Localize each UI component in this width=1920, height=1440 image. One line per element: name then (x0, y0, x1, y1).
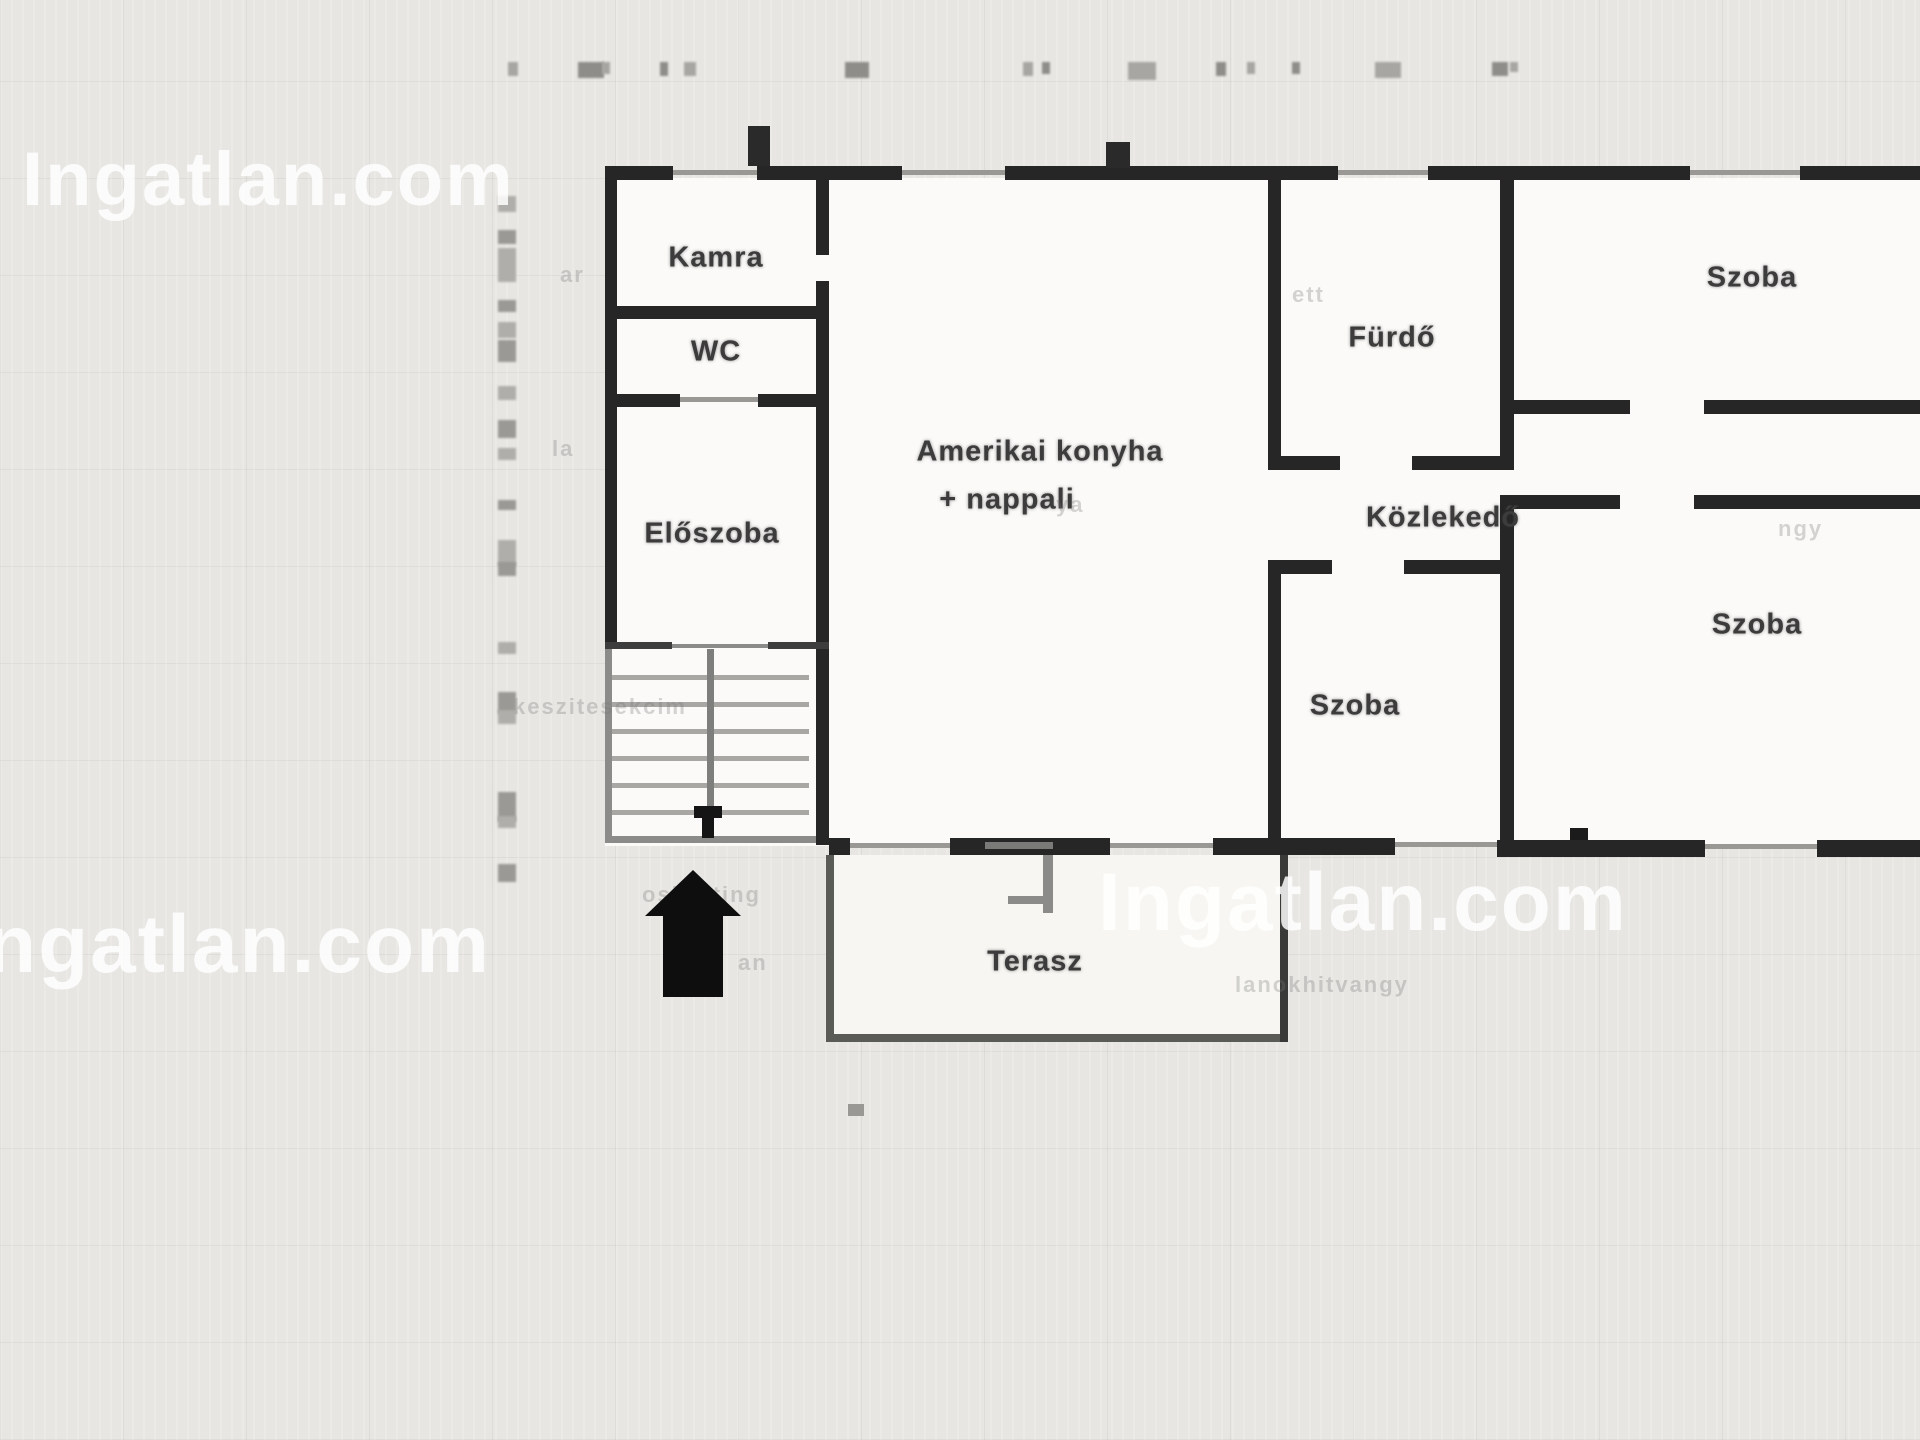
floorplan-image: KamraWCElőszobaAmerikai konyha+ nappaliF… (0, 0, 1920, 1440)
wall-segment (758, 394, 829, 407)
wall-segment (605, 394, 680, 407)
dimension-mark-top (578, 62, 604, 78)
wall-segment (1500, 180, 1514, 470)
dimension-mark-left (498, 562, 516, 576)
wall-segment (902, 170, 1005, 175)
wall-segment (1268, 560, 1332, 574)
dimension-mark-top (1375, 62, 1401, 78)
wall-segment (826, 855, 834, 1042)
wall-segment (702, 818, 714, 838)
dimension-mark-top (1216, 62, 1226, 76)
wall-segment (985, 842, 1053, 849)
wall-segment (1404, 560, 1500, 574)
room-label-furdo: Fürdő (1348, 322, 1435, 355)
floorplan-walls-layer: KamraWCElőszobaAmerikai konyha+ nappaliF… (0, 0, 1920, 1440)
wall-segment (1106, 142, 1130, 168)
dimension-mark-left (498, 322, 516, 338)
wall-segment (680, 397, 758, 402)
wall-segment (605, 649, 612, 843)
dimension-mark-top (508, 62, 518, 76)
room-label-terasz: Terasz (987, 946, 1083, 979)
dimension-mark-left (498, 500, 516, 510)
dimension-mark-top (684, 62, 696, 76)
watermark-fragment: zkeszitesekcim (500, 694, 687, 720)
room-label-szoba-right: Szoba (1712, 609, 1802, 642)
background-speck (848, 1104, 864, 1116)
dimension-mark-top (1247, 62, 1255, 74)
dimension-mark-top (1128, 62, 1156, 80)
wall-segment (850, 843, 950, 848)
room-label-eloszoba: Előszoba (644, 518, 779, 551)
wall-segment (1800, 166, 1920, 180)
dimension-mark-left (498, 300, 516, 312)
wall-segment (1280, 855, 1288, 1042)
wall-segment (1268, 456, 1340, 470)
wall-segment (707, 649, 714, 809)
dimension-mark-left (498, 864, 516, 882)
dimension-mark-top (1292, 62, 1300, 74)
room-label-nappali-1: Amerikai konyha (916, 436, 1163, 469)
wall-segment (1690, 170, 1800, 175)
wall-segment (605, 306, 829, 319)
wall-segment (1704, 400, 1920, 414)
dimension-mark-left (498, 196, 516, 212)
wall-segment (605, 642, 672, 649)
wall-segment (1281, 838, 1395, 855)
wall-segment (1694, 495, 1920, 509)
dimension-mark-left (498, 386, 516, 400)
wall-segment (1008, 896, 1046, 904)
wall-segment (1570, 828, 1588, 840)
wall-segment (1110, 843, 1213, 848)
dimension-mark-left (498, 642, 516, 654)
room-label-szoba-mid: Szoba (1310, 690, 1400, 723)
dimension-mark-left (498, 248, 516, 282)
watermark-fragment: la (552, 436, 574, 462)
watermark-fragment: lanokhitvangy (1235, 972, 1409, 998)
wall-segment (826, 1034, 1288, 1042)
wall-segment (757, 166, 902, 180)
dimension-mark-top (845, 62, 869, 78)
wall-segment (1338, 170, 1428, 175)
wall-segment (1428, 166, 1690, 180)
room-label-szoba-top: Szoba (1707, 262, 1797, 295)
entrance-arrow-icon (645, 870, 741, 916)
dimension-mark-top (1042, 62, 1050, 74)
wall-segment (1514, 400, 1630, 414)
wall-segment (829, 838, 850, 855)
dimension-mark-top (1492, 62, 1508, 76)
wall-segment (816, 166, 829, 255)
wall-segment (1268, 560, 1281, 845)
watermark-fragment: ett (1292, 282, 1325, 308)
dimension-mark-left (498, 710, 516, 724)
wall-segment (1500, 495, 1514, 850)
wall-segment (1705, 844, 1817, 849)
room-label-nappali-2: + nappali (939, 484, 1075, 517)
room-label-kamra: Kamra (668, 242, 763, 275)
wall-segment (1005, 166, 1338, 180)
watermark-fragment: ar (560, 262, 585, 288)
watermark-fragment: ngy (1778, 516, 1823, 542)
dimension-mark-top (1510, 62, 1518, 72)
dimension-mark-left (498, 816, 516, 828)
wall-segment (694, 806, 722, 818)
wall-segment (1043, 855, 1053, 913)
dimension-mark-top (1023, 62, 1033, 76)
wall-segment (605, 166, 617, 648)
wall-segment (1395, 842, 1497, 847)
dimension-mark-top (602, 62, 610, 74)
wall-segment (748, 126, 770, 166)
wall-segment (1817, 840, 1920, 857)
dimension-mark-left (498, 230, 516, 244)
wall-segment (1268, 180, 1281, 470)
wall-segment (1497, 840, 1705, 857)
room-label-kozlekedo: Közlekedő (1366, 502, 1520, 535)
dimension-mark-left (498, 420, 516, 438)
dimension-mark-top (660, 62, 668, 76)
wall-segment (816, 281, 829, 845)
wall-segment (1514, 495, 1620, 509)
wall-segment (768, 642, 829, 649)
wall-segment (1412, 456, 1500, 470)
watermark-fragment: an (738, 950, 768, 976)
dimension-mark-left (498, 448, 516, 460)
wall-segment (673, 170, 757, 175)
dimension-mark-left (498, 340, 516, 362)
wall-segment (672, 644, 768, 648)
entrance-arrow-icon (663, 915, 723, 997)
room-label-wc: WC (691, 336, 741, 369)
